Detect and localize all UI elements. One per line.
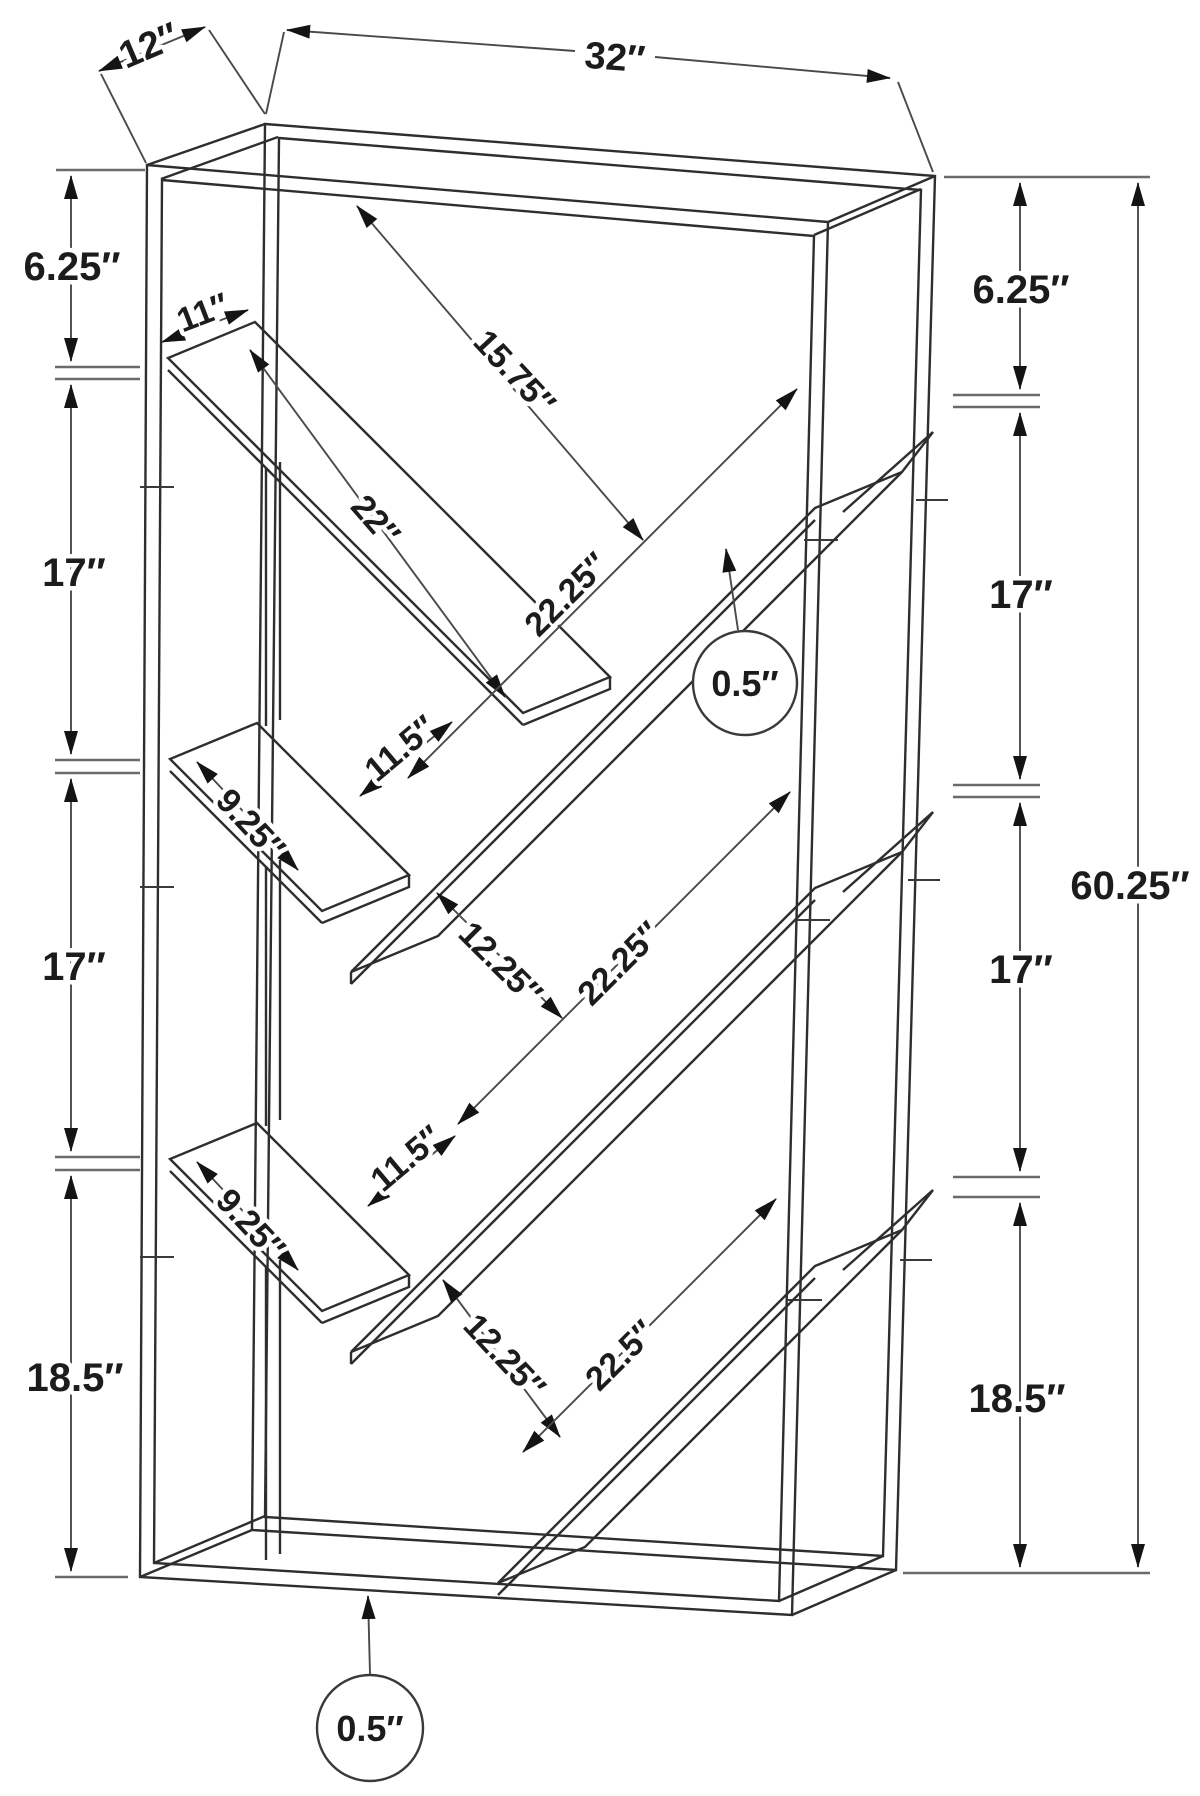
dim-shelf-a-22: 22″ — [250, 350, 505, 697]
dim-label-thickness-mid: 0.5″ — [711, 663, 778, 704]
back-frame — [252, 124, 935, 1570]
right-chain-label-1: 17″ — [989, 573, 1053, 617]
dim-v2-offset-12-25: 12.25″ — [437, 893, 562, 1018]
dim-label-v2-gap: 11.5″ — [364, 1118, 450, 1199]
dim-label-v3-offset: 12.25″ — [456, 1307, 553, 1407]
dim-label-shelf-e: 9.25″ — [208, 1182, 292, 1268]
dim-label-v1-gap: 11.5″ — [358, 708, 444, 789]
dim-v1-gap-11-5: 11.5″ — [358, 708, 452, 796]
dim-shelf-depth-11: 11″ — [162, 286, 248, 342]
dim-shelf-e-9-25: 9.25″ — [197, 1162, 298, 1270]
left-chain-label-0: 6.25″ — [23, 245, 120, 289]
dim-label-shelf-c: 9.25″ — [208, 782, 292, 868]
dim-label-depth: 12″ — [113, 15, 185, 77]
dim-shelf-f-22-5: 22.5″ — [523, 1199, 776, 1452]
right-chain-label-2: 17″ — [989, 948, 1053, 992]
dim-depth-12: 12″ — [99, 15, 265, 163]
left-dimension-chain: 6.25″ 17″ 17″ 18.5″ — [23, 170, 145, 1577]
dim-label-shelf-b: 22.25″ — [517, 545, 616, 644]
dim-label-shelf-f: 22.5″ — [578, 1313, 663, 1398]
thickness-callout-bottom: 0.5″ — [317, 1596, 423, 1781]
bookcase-dimension-drawing: 12″ 32″ 6.25″ 17″ 17″ 18.5″ — [0, 0, 1200, 1796]
dim-label-shelf-depth: 11″ — [172, 286, 234, 340]
dim-label-v2-offset: 12.25″ — [451, 914, 550, 1013]
dim-v2-gap-11-5: 11.5″ — [364, 1118, 455, 1206]
shelf-b-board — [351, 432, 933, 984]
dim-top-gap-15-75: 15.75″ — [357, 206, 643, 540]
dim-label-thickness-bottom: 0.5″ — [336, 1708, 403, 1749]
furniture-dimension-diagram: 12″ 32″ 6.25″ 17″ 17″ 18.5″ — [0, 0, 1200, 1796]
right-chain-label-0: 6.25″ — [972, 268, 1069, 312]
shelf-f-board — [498, 1190, 933, 1595]
total-height-dimension: 60.25″ — [1070, 183, 1189, 1567]
dim-label-total-height: 60.25″ — [1070, 864, 1189, 908]
dim-label-top-gap: 15.75″ — [466, 323, 563, 423]
dim-label-width: 32″ — [583, 35, 647, 82]
left-chain-label-1: 17″ — [42, 551, 106, 595]
left-chain-label-2: 17″ — [42, 945, 106, 989]
left-chain-label-3: 18.5″ — [26, 1356, 123, 1400]
dim-label-shelf-d: 22.25″ — [570, 914, 669, 1013]
dim-v3-offset-12-25: 12.25″ — [443, 1280, 560, 1437]
right-chain-label-3: 18.5″ — [968, 1377, 1065, 1421]
shelf-e-board — [170, 1123, 409, 1323]
dim-shelf-c-9-25: 9.25″ — [197, 762, 298, 870]
